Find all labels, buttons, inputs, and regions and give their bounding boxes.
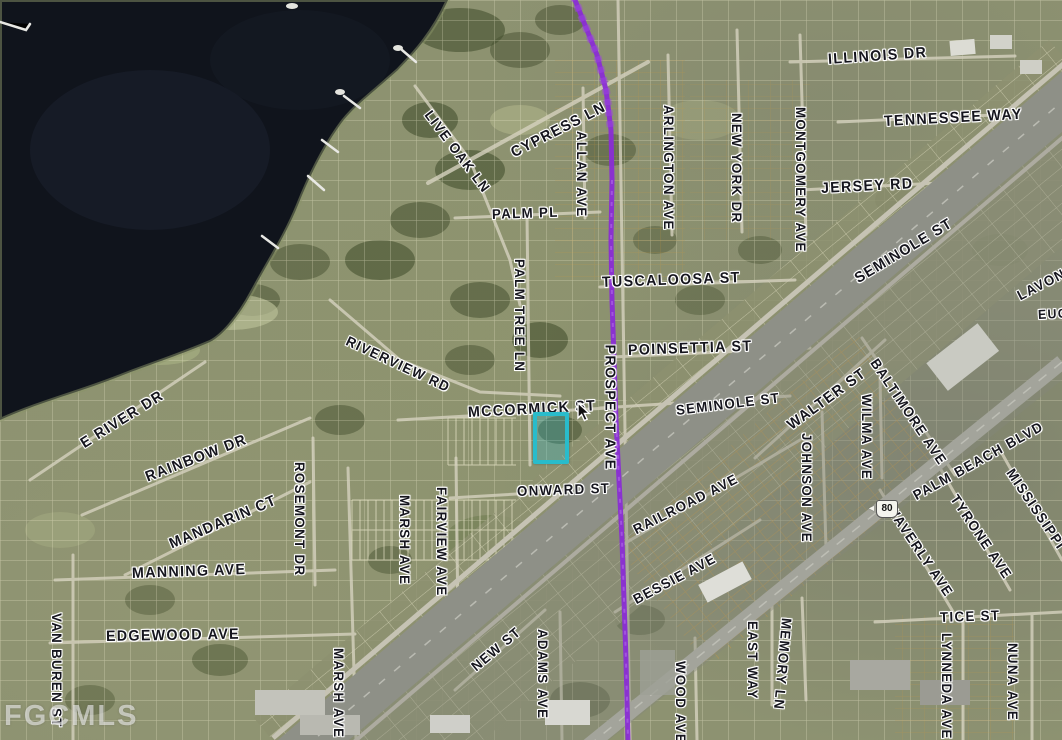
shield-arrow-icon: ◄ <box>867 503 876 513</box>
street-label-marsh-ave: MARSH AVE <box>332 648 346 738</box>
route-80-shield: 80 <box>876 500 898 518</box>
street-label-fairview-ave: FAIRVIEW AVE <box>435 487 449 597</box>
street-label-allan-ave: ALLAN AVE <box>575 131 589 218</box>
street-label-arlington-ave: ARLINGTON AVE <box>662 105 676 231</box>
street-label-palm-tree-ln: PALM TREE LN <box>513 259 527 372</box>
highlighted-parcel[interactable] <box>533 412 569 464</box>
mouse-cursor-icon <box>577 402 597 424</box>
street-label-lynneda-ave: LYNNEDA AVE <box>940 633 954 740</box>
street-label-new-york-dr: NEW YORK DR <box>730 113 744 223</box>
street-label-palm-pl: PALM PL <box>492 205 559 221</box>
street-label-nuna-ave: NUNA AVE <box>1006 643 1020 721</box>
street-label-manning-ave: MANNING AVE <box>132 562 247 581</box>
street-label-edgewood-ave: EDGEWOOD AVE <box>106 627 240 644</box>
street-label-rosemont-dr: ROSEMONT DR <box>293 462 307 576</box>
street-label-eug: EUG <box>1038 306 1062 321</box>
street-label-wilma-ave: WILMA AVE <box>860 394 874 480</box>
street-label-poinsettia-st: POINSETTIA ST <box>628 339 753 358</box>
street-label-marsh-ave: MARSH AVE <box>398 495 412 585</box>
mls-watermark: FGCMLS <box>4 700 138 733</box>
street-label-onward-st: ONWARD ST <box>517 481 611 498</box>
street-label-adams-ave: ADAMS AVE <box>536 629 550 719</box>
street-label-johnson-ave: JOHNSON AVE <box>800 433 814 543</box>
street-label-wood-ave: WOOD AVE <box>674 661 688 740</box>
street-label-east-way: EAST WAY <box>746 621 760 700</box>
street-label-prospect-ave: PROSPECT AVE <box>603 345 618 471</box>
street-label-tice-st: TICE ST <box>940 608 1001 624</box>
street-label-montgomery-ave: MONTGOMERY AVE <box>794 107 808 253</box>
aerial-map[interactable]: ILLINOIS DRTENNESSEE WAYJERSEY RDMONTGOM… <box>0 0 1062 740</box>
